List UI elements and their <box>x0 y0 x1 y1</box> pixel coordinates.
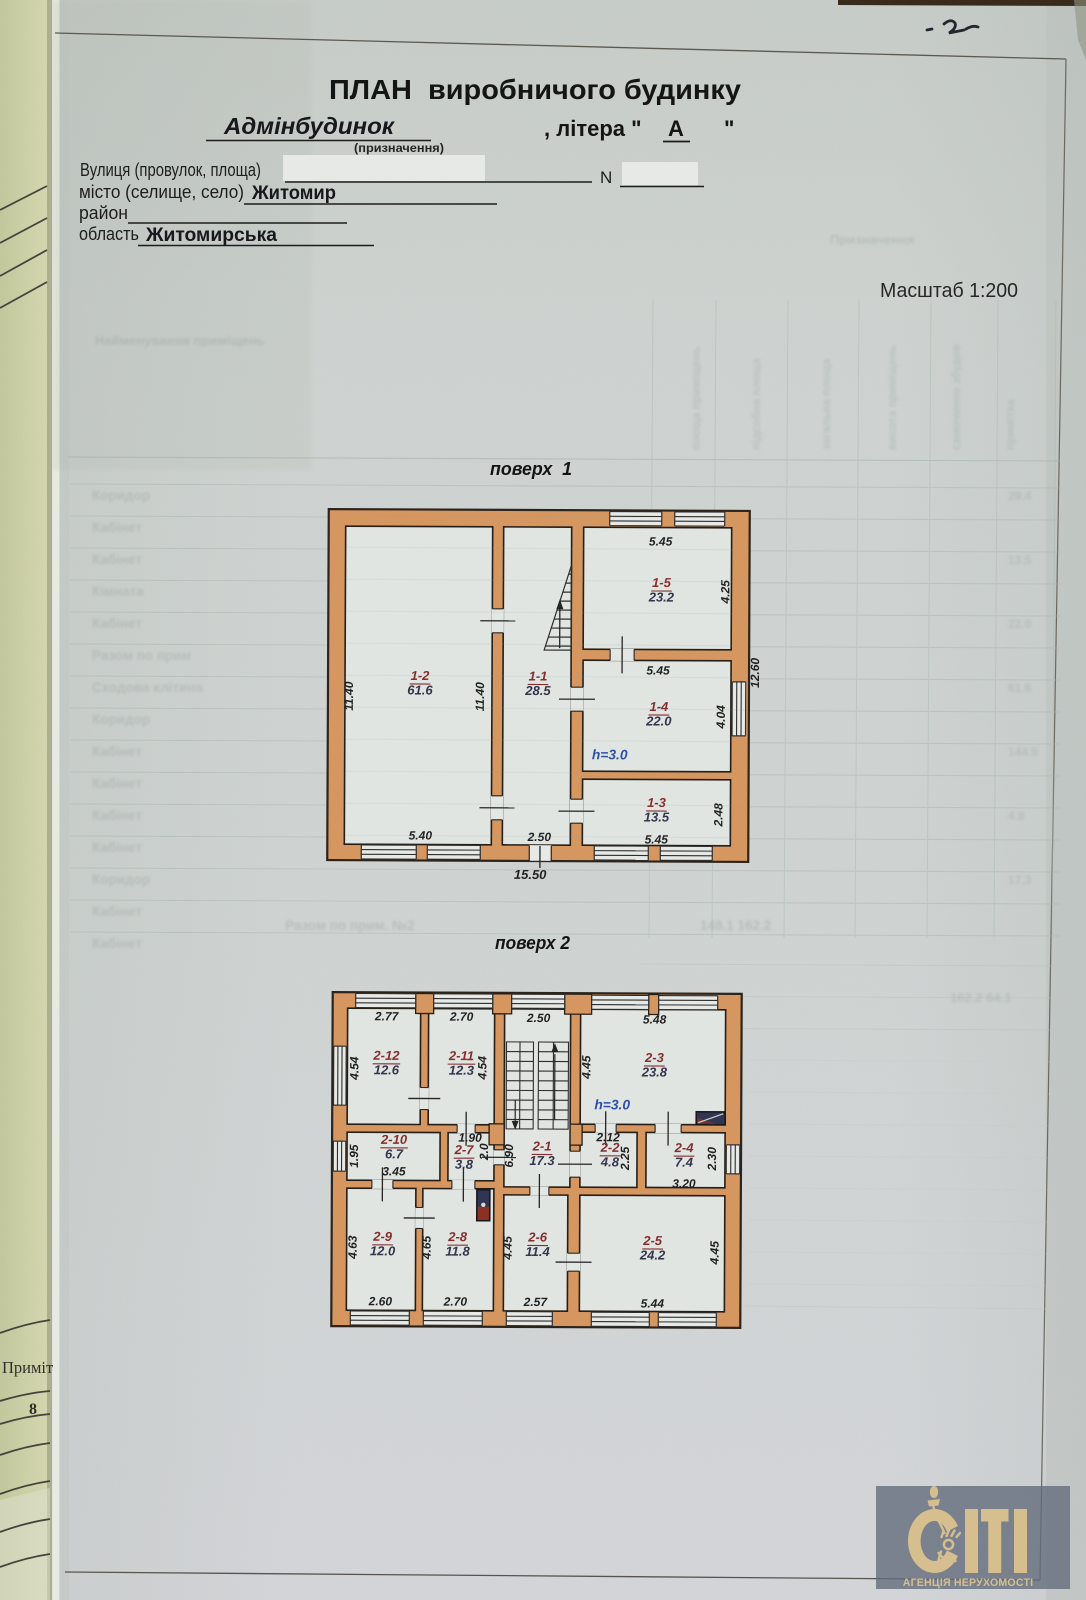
svg-text:8: 8 <box>29 1401 37 1418</box>
svg-text:Приміт: Приміт <box>2 1358 53 1377</box>
